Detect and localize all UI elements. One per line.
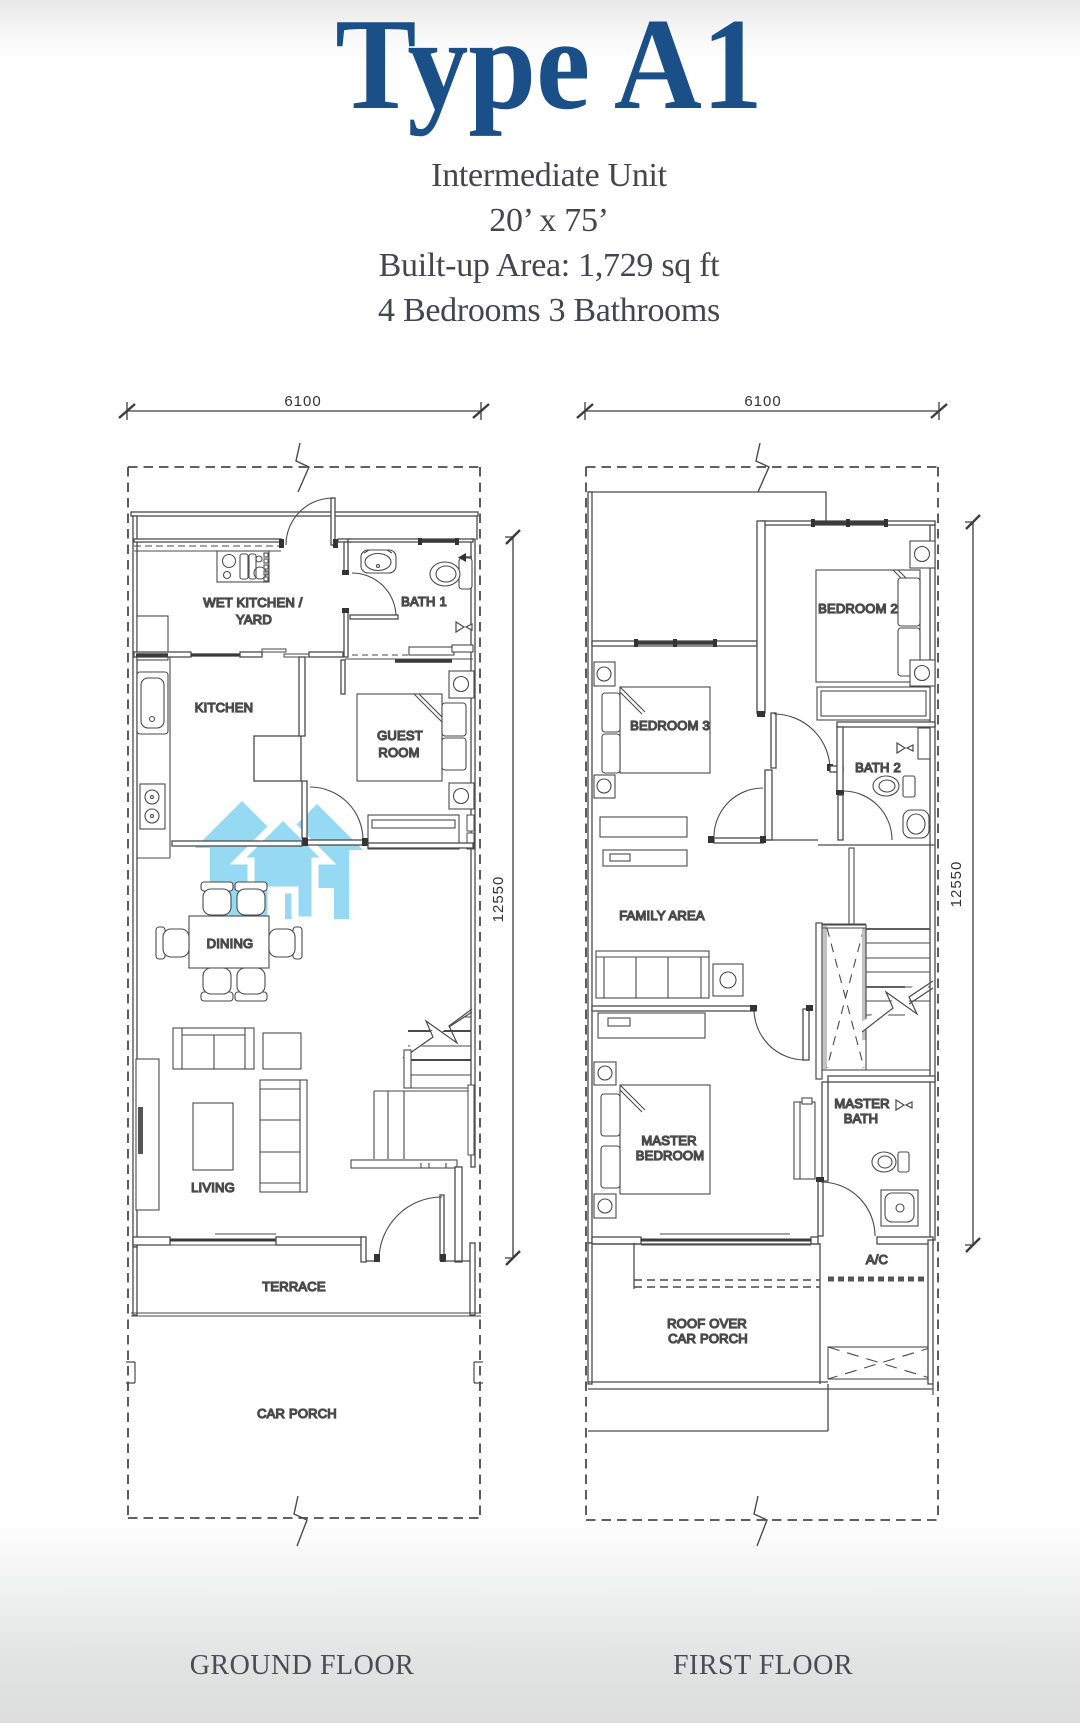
svg-text:6100: 6100 xyxy=(744,393,781,410)
svg-text:BEDROOM 2: BEDROOM 2 xyxy=(818,601,898,616)
svg-text:LIVING: LIVING xyxy=(191,1180,235,1195)
svg-text:BEDROOM: BEDROOM xyxy=(636,1148,705,1163)
svg-text:MASTER: MASTER xyxy=(641,1133,696,1148)
svg-text:CAR PORCH: CAR PORCH xyxy=(668,1331,748,1346)
svg-text:BATH: BATH xyxy=(844,1111,879,1126)
svg-text:BATH 2: BATH 2 xyxy=(855,760,901,775)
svg-text:FAMILY AREA: FAMILY AREA xyxy=(619,908,705,923)
svg-text:KITCHEN: KITCHEN xyxy=(195,700,253,715)
svg-text:ROOM: ROOM xyxy=(378,745,419,760)
svg-text:BEDROOM 3: BEDROOM 3 xyxy=(630,718,710,733)
svg-text:YARD: YARD xyxy=(236,612,272,627)
svg-text:WET KITCHEN /: WET KITCHEN / xyxy=(203,595,302,610)
svg-text:MASTER: MASTER xyxy=(834,1096,889,1111)
svg-text:A/C: A/C xyxy=(866,1252,888,1267)
svg-text:12550: 12550 xyxy=(948,861,965,908)
svg-text:TERRACE: TERRACE xyxy=(262,1279,326,1294)
svg-text:12550: 12550 xyxy=(490,876,507,923)
svg-text:6100: 6100 xyxy=(284,393,321,410)
svg-text:ROOF OVER: ROOF OVER xyxy=(667,1316,747,1331)
svg-text:CAR PORCH: CAR PORCH xyxy=(257,1406,337,1421)
svg-text:BATH 1: BATH 1 xyxy=(401,594,447,609)
svg-text:DINING: DINING xyxy=(207,936,254,951)
svg-text:GUEST: GUEST xyxy=(377,728,423,743)
